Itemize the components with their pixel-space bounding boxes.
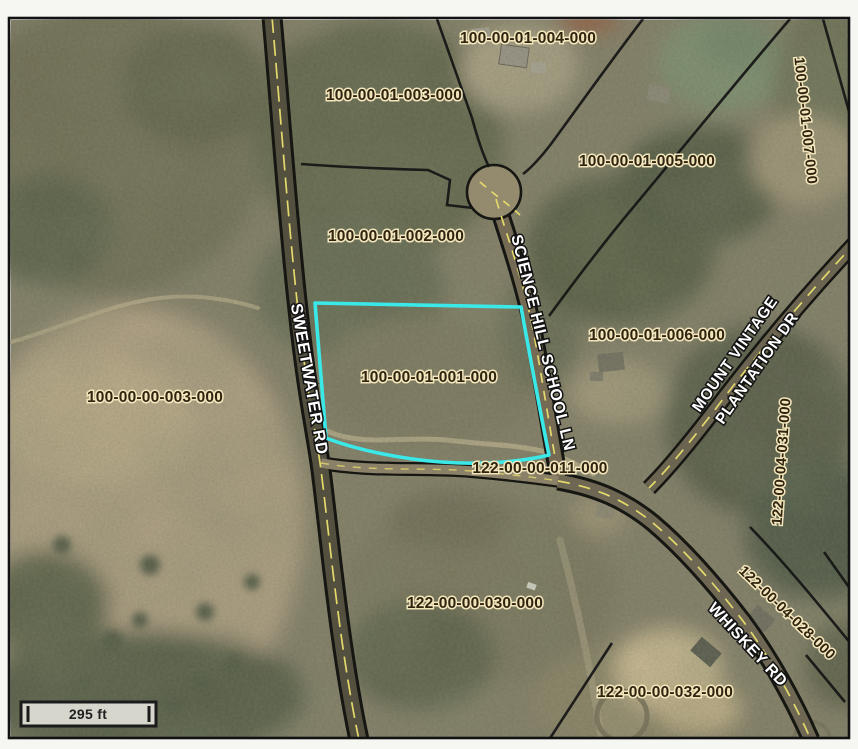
parcel-label-002: 100-00-01-002-000 <box>328 228 464 245</box>
parcel-label-011: 122-00-00-011-000 <box>472 460 607 477</box>
cul-de-sac <box>467 165 521 219</box>
gis-parcel-map-page: 100-00-01-004-000 100-00-01-003-000 100-… <box>0 0 858 749</box>
parcel-label-032: 122-00-00-032-000 <box>597 684 733 701</box>
scale-bar: 295 ft <box>21 702 156 726</box>
scale-bar-label: 295 ft <box>69 706 107 722</box>
parcel-label-003-west: 100-00-00-003-000 <box>87 389 223 406</box>
parcel-label-030: 122-00-00-030-000 <box>407 595 543 612</box>
parcel-map-canvas[interactable]: 100-00-01-004-000 100-00-01-003-000 100-… <box>0 0 858 749</box>
parcel-label-006: 100-00-01-006-000 <box>589 327 725 344</box>
parcel-label-003: 100-00-01-003-000 <box>326 87 462 104</box>
parcel-label-004: 100-00-01-004-000 <box>460 30 596 47</box>
parcel-label-005: 100-00-01-005-000 <box>579 153 715 170</box>
parcel-label-001: 100-00-01-001-000 <box>361 369 497 386</box>
